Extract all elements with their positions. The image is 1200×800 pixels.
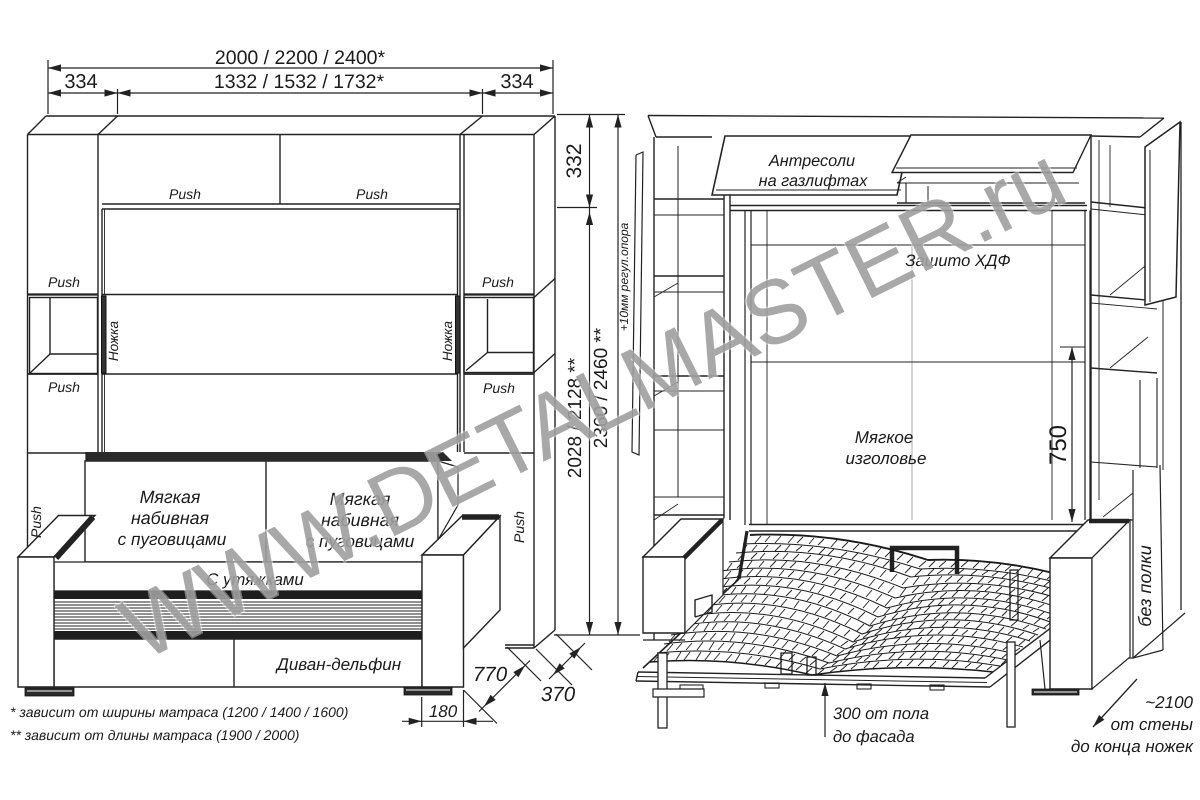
svg-text:без полки: без полки — [1135, 545, 1155, 626]
svg-text:* зависит от ширины матраса (1: * зависит от ширины матраса (1200 / 1400… — [10, 704, 348, 720]
svg-text:Диван-дельфин: Диван-дельфин — [275, 655, 402, 674]
svg-text:332: 332 — [563, 143, 586, 178]
svg-text:750: 750 — [1045, 425, 1072, 465]
svg-text:770: 770 — [473, 663, 508, 686]
svg-text:2000 / 2200 / 2400*: 2000 / 2200 / 2400* — [215, 47, 386, 69]
svg-text:Push: Push — [48, 379, 80, 395]
svg-text:+10мм регул.опора: +10мм регул.опора — [617, 222, 631, 331]
svg-text:Мягкое: Мягкое — [855, 428, 914, 447]
svg-text:Push: Push — [169, 186, 201, 202]
svg-text:Антресоли: Антресоли — [768, 152, 855, 170]
svg-text:до конца ножек: до конца ножек — [1071, 737, 1194, 756]
svg-text:** зависит от длины матраса (1: ** зависит от длины матраса (1900 / 2000… — [10, 727, 299, 743]
svg-text:Ножка: Ножка — [440, 320, 455, 361]
svg-text:до фасада: до фасада — [833, 728, 915, 746]
svg-text:Push: Push — [482, 274, 514, 290]
svg-text:Push: Push — [28, 506, 44, 538]
svg-text:~2100: ~2100 — [1145, 693, 1193, 712]
svg-text:370: 370 — [541, 683, 576, 706]
svg-text:Push: Push — [48, 274, 80, 290]
svg-text:на газлифтах: на газлифтах — [759, 172, 869, 190]
svg-text:Мягкая: Мягкая — [140, 487, 201, 507]
svg-text:334: 334 — [64, 71, 97, 93]
svg-text:180: 180 — [429, 702, 458, 721]
svg-text:набивная: набивная — [131, 508, 210, 528]
svg-text:334: 334 — [500, 71, 533, 93]
svg-text:1332 / 1532 / 1732*: 1332 / 1532 / 1732* — [214, 71, 385, 93]
svg-text:300 от пола: 300 от пола — [833, 705, 929, 723]
svg-text:изголовье: изголовье — [846, 449, 927, 468]
svg-text:Ножка: Ножка — [106, 320, 121, 361]
svg-text:от стены: от стены — [1111, 715, 1194, 734]
svg-text:Push: Push — [511, 511, 527, 543]
svg-text:Push: Push — [356, 186, 388, 202]
